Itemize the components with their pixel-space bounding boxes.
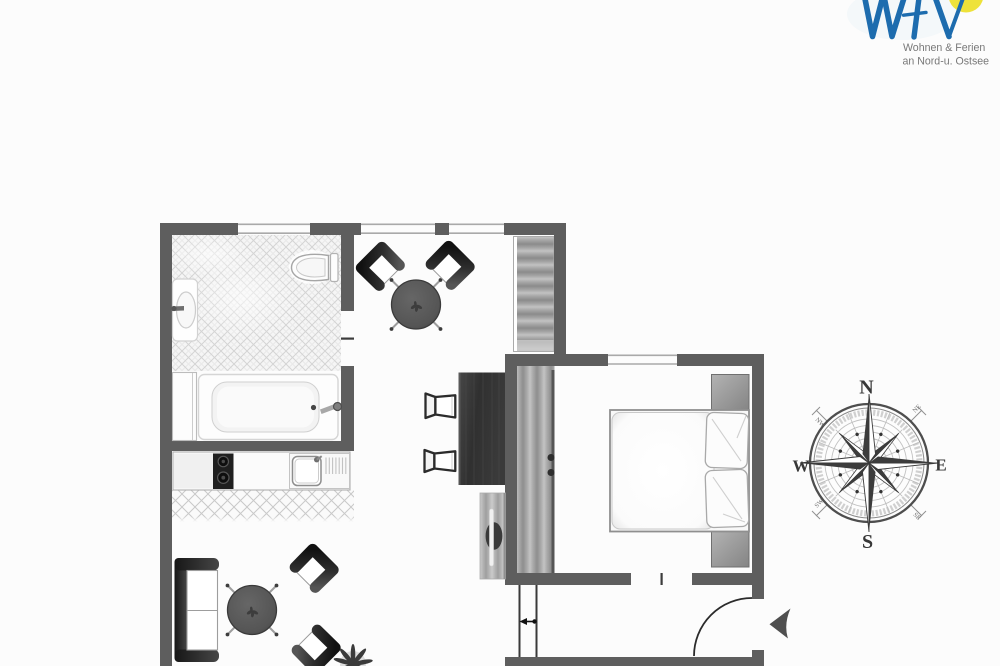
svg-text:SE: SE (912, 511, 922, 521)
svg-text:an Nord-u. Ostsee: an Nord-u. Ostsee (903, 56, 990, 68)
svg-text:Wohnen & Ferien: Wohnen & Ferien (903, 42, 985, 54)
svg-text:NE: NE (911, 403, 922, 414)
svg-text:W: W (793, 457, 810, 476)
svg-text:N: N (859, 377, 874, 399)
svg-text:S: S (862, 531, 873, 553)
svg-text:E: E (935, 456, 946, 475)
